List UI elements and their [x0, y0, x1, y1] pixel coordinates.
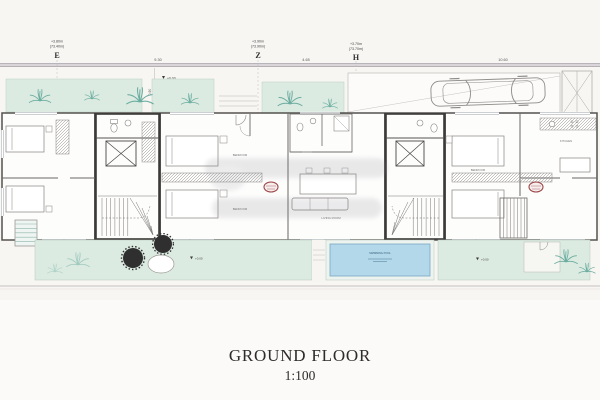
kitchen-table [560, 158, 590, 172]
rear-terrace-left: +0.00 [35, 234, 312, 280]
room-label-bedroom-1: BEDROOM [233, 153, 248, 157]
kitchen-counter [540, 118, 596, 130]
sink-icon [417, 120, 423, 126]
toilet-icon [431, 124, 437, 132]
wardrobe [56, 120, 69, 154]
toilet-icon [111, 124, 117, 132]
drawing-scale: 1:100 [285, 368, 316, 383]
pool-label: SWIMMING POOL [369, 251, 391, 255]
sink-icon [549, 121, 555, 127]
outdoor-stair-left [15, 220, 37, 246]
pool-area: SWIMMING POOL [326, 240, 434, 280]
toilet-icon [297, 123, 303, 131]
rear-terrace-right: +0.00 [438, 240, 595, 280]
front-garden-beds [6, 79, 344, 114]
paved-patio [524, 242, 560, 272]
marker-h-datum: (73.70m) [349, 47, 363, 51]
marker-h-letter: H [353, 53, 360, 62]
terrace-level-value: +0.00 [195, 257, 203, 261]
sink-icon [310, 118, 316, 124]
marker-e-elevation: +3.80m [51, 40, 63, 44]
parking-area [348, 71, 592, 115]
floorplan-sheet: +3.80m (73.40m) E +3.90m (73.90m) Z +3.7… [0, 0, 600, 400]
sink-icon [125, 120, 131, 126]
garden-bed-1 [6, 79, 142, 112]
garden-bed-2 [152, 79, 214, 112]
room-label-kitchen: KITCHEN [560, 139, 572, 143]
rear-walkway [312, 240, 326, 282]
marker-e-datum: (73.40m) [50, 45, 64, 49]
bed [6, 126, 44, 152]
shelving [142, 122, 155, 162]
approval-stamp [264, 182, 278, 192]
dim-span-right: 10.60 [498, 58, 508, 62]
approval-stamp [529, 182, 543, 192]
bed [452, 190, 504, 218]
marker-z-elevation: +3.90m [252, 40, 264, 44]
dim-span-z-h: 4.65 [302, 58, 309, 62]
marker-z-datum: (73.90m) [251, 45, 265, 49]
floorplan-drawing: +3.80m (73.40m) E +3.90m (73.90m) Z +3.7… [0, 0, 600, 400]
marker-e-letter: E [54, 51, 59, 60]
wardrobe-strip [452, 173, 552, 182]
right-level-value: +0.00 [481, 258, 489, 262]
garden-bed-3 [262, 82, 344, 114]
bed [452, 136, 504, 166]
patio-table [148, 255, 174, 273]
room-label-bedroom-3: BEDROOM [471, 168, 486, 172]
marker-z-letter: Z [255, 51, 260, 60]
dim-span-e-z: 9.30 [154, 58, 161, 62]
marker-h-elevation: +3.70m [350, 42, 362, 46]
swimming-pool [330, 244, 430, 276]
bed [166, 190, 218, 218]
drawing-title: GROUND FLOOR [229, 346, 371, 365]
bed [6, 186, 44, 212]
